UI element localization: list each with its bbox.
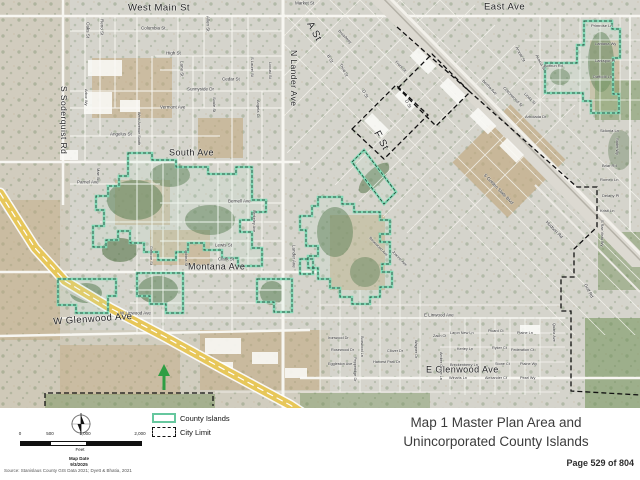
scale-unit-label: Feet <box>71 447 89 452</box>
scale-bar-segment <box>51 442 86 445</box>
legend-item-city-limit: City Limit <box>152 427 211 437</box>
map-title-line1: Map 1 Master Plan Area and <box>356 414 636 433</box>
city-limit-swatch <box>152 427 176 437</box>
scale-tick-2000: 2,000 <box>131 431 149 436</box>
county-islands-swatch <box>152 413 176 423</box>
aerial-map-graphics <box>0 0 640 408</box>
legend-label: County Islands <box>180 414 230 423</box>
legend-item-county-islands: County Islands <box>152 413 230 423</box>
scale-bar-segment <box>86 442 141 445</box>
map-title-line2: Unincorporated County Islands <box>356 433 636 452</box>
scale-tick-500: 500 <box>41 431 59 436</box>
document-page: West Main StEast AveS Soderquist RdN Lan… <box>0 0 640 480</box>
aerial-map: West Main StEast AveS Soderquist RdN Lan… <box>0 0 640 408</box>
map-title: Map 1 Master Plan Area and Unincorporate… <box>356 414 636 452</box>
scale-bar <box>20 441 142 446</box>
scale-tick-0: 0 <box>11 431 29 436</box>
map-date-label: Map Date <box>69 456 89 461</box>
source-note: Source: Stanislaus County GIS Data 2021;… <box>4 468 132 473</box>
map-date-value: 9/3/2025 <box>69 462 89 467</box>
legend-label: City Limit <box>180 428 211 437</box>
page-number: Page 529 of 804 <box>566 458 634 468</box>
scale-tick-1000: 1,000 <box>76 431 94 436</box>
scale-bar-segment <box>21 442 51 445</box>
